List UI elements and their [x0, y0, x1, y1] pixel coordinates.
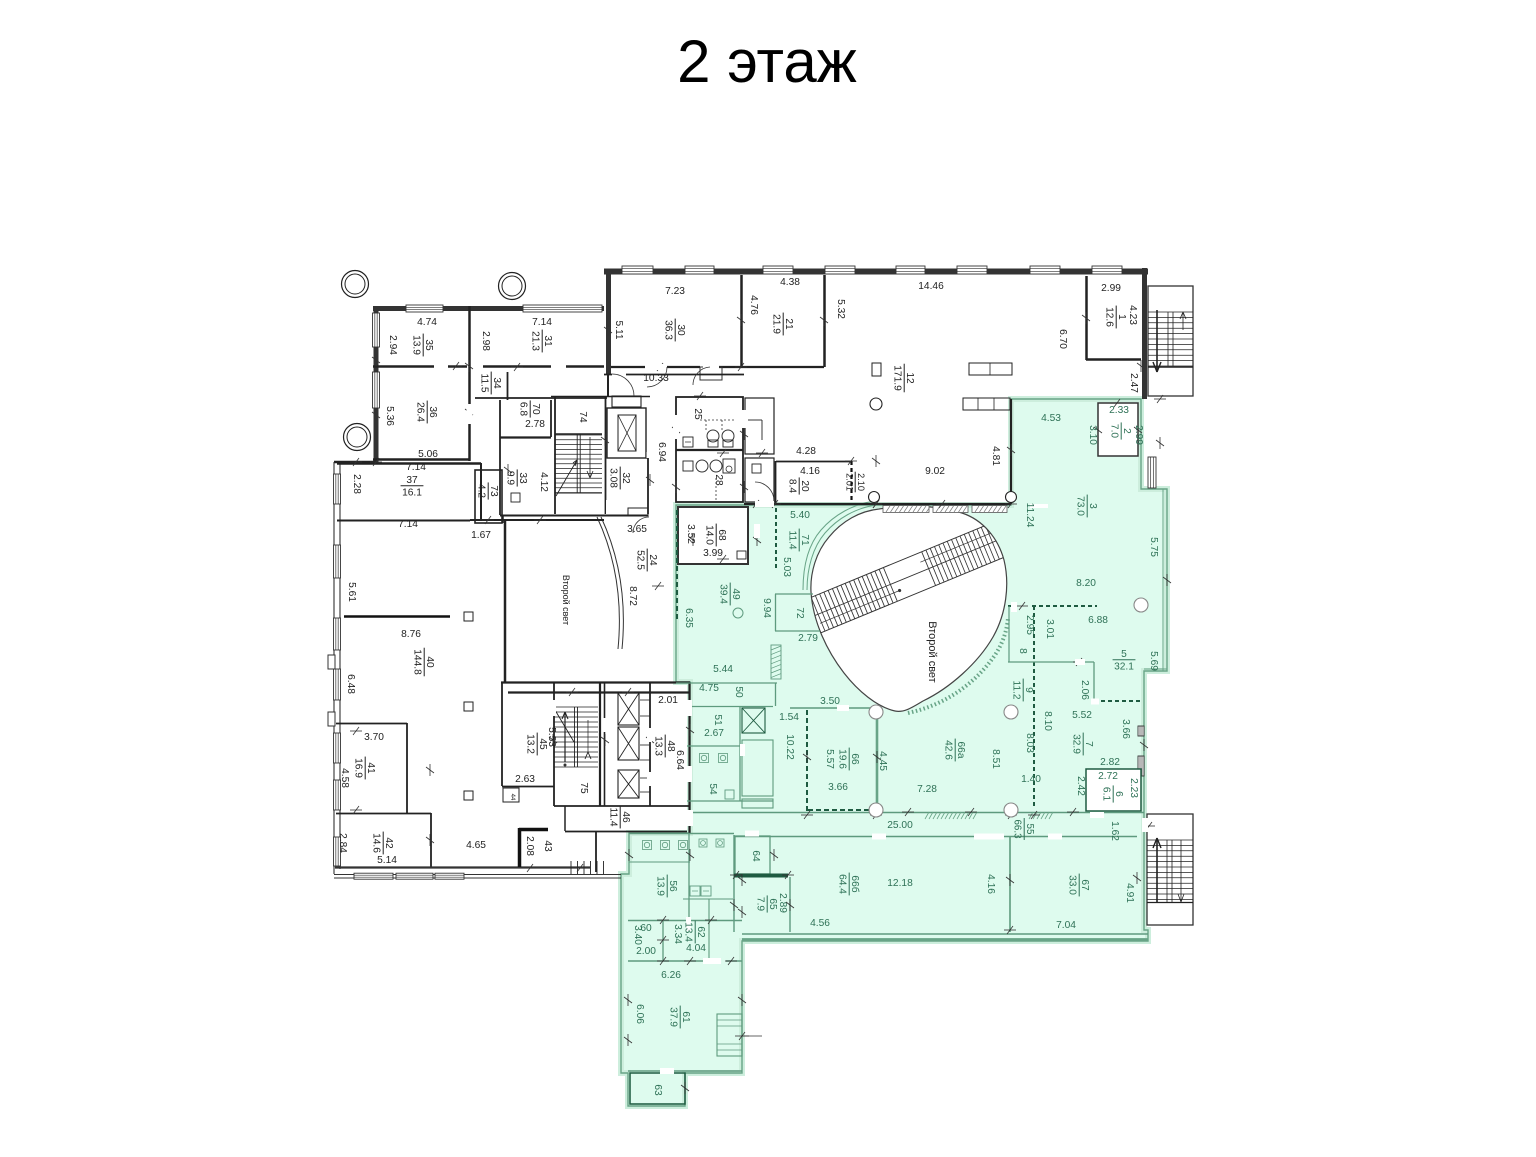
svg-text:14.6: 14.6 — [370, 833, 381, 853]
svg-text:2.01: 2.01 — [658, 695, 678, 706]
svg-text:50: 50 — [733, 686, 744, 698]
svg-text:5.52: 5.52 — [1072, 710, 1092, 721]
svg-text:12.6: 12.6 — [1103, 307, 1114, 327]
svg-text:2.94: 2.94 — [387, 335, 398, 355]
svg-text:4.38: 4.38 — [780, 277, 800, 288]
svg-text:64: 64 — [750, 850, 761, 862]
svg-text:16.1: 16.1 — [402, 488, 422, 499]
svg-text:3.34: 3.34 — [672, 924, 683, 944]
svg-text:4.2: 4.2 — [475, 484, 486, 498]
svg-text:11.4: 11.4 — [607, 807, 618, 826]
svg-text:8: 8 — [1017, 648, 1028, 654]
svg-text:20: 20 — [799, 480, 810, 492]
svg-text:12: 12 — [904, 372, 915, 384]
svg-text:7.9: 7.9 — [754, 897, 765, 911]
svg-text:2.47: 2.47 — [1128, 373, 1139, 393]
svg-text:4.28: 4.28 — [796, 446, 816, 457]
svg-text:5: 5 — [1121, 649, 1127, 660]
svg-text:11.24: 11.24 — [1024, 503, 1035, 528]
svg-text:13.2: 13.2 — [524, 734, 535, 754]
svg-text:11.4: 11.4 — [786, 530, 797, 549]
svg-text:7.14: 7.14 — [406, 462, 426, 473]
svg-text:25.00: 25.00 — [887, 820, 913, 831]
svg-text:7.0: 7.0 — [1108, 424, 1119, 438]
svg-text:6: 6 — [1113, 791, 1124, 797]
svg-text:71: 71 — [799, 534, 810, 546]
svg-text:6.8: 6.8 — [517, 402, 528, 416]
svg-text:2.79: 2.79 — [798, 633, 818, 644]
svg-text:8.76: 8.76 — [401, 629, 421, 640]
svg-text:Второй свет: Второй свет — [926, 621, 938, 682]
svg-text:2.89: 2.89 — [777, 893, 788, 913]
svg-text:39.4: 39.4 — [717, 584, 728, 604]
svg-text:70: 70 — [530, 403, 541, 415]
svg-text:45: 45 — [537, 738, 548, 750]
svg-text:8.10: 8.10 — [1042, 711, 1053, 731]
svg-text:9.02: 9.02 — [925, 466, 945, 477]
svg-text:14.46: 14.46 — [918, 281, 944, 292]
svg-text:4.81: 4.81 — [990, 446, 1001, 466]
svg-text:54: 54 — [707, 783, 718, 795]
svg-text:32.1: 32.1 — [1114, 662, 1134, 673]
svg-text:144.8: 144.8 — [411, 649, 422, 675]
svg-text:6.26: 6.26 — [661, 970, 681, 981]
svg-text:3.52: 3.52 — [685, 524, 696, 544]
svg-text:12.18: 12.18 — [887, 878, 913, 889]
svg-text:4.16: 4.16 — [800, 466, 820, 477]
svg-text:2.82: 2.82 — [1100, 757, 1120, 768]
svg-text:10.33: 10.33 — [643, 373, 669, 384]
svg-text:3.40: 3.40 — [632, 925, 643, 945]
svg-text:2.78: 2.78 — [525, 419, 545, 430]
svg-text:75: 75 — [578, 782, 589, 794]
svg-text:5.32: 5.32 — [835, 299, 846, 319]
svg-text:8.4: 8.4 — [786, 479, 797, 493]
svg-text:7.14: 7.14 — [532, 317, 552, 328]
svg-text:37: 37 — [406, 475, 418, 486]
svg-text:2.42: 2.42 — [1075, 776, 1086, 796]
svg-text:2.99: 2.99 — [1101, 283, 1121, 294]
svg-text:4.12: 4.12 — [538, 472, 549, 492]
svg-text:5.03: 5.03 — [781, 557, 792, 577]
svg-text:2 этаж: 2 этаж — [677, 28, 857, 95]
svg-text:8.20: 8.20 — [1076, 578, 1096, 589]
svg-text:33.0: 33.0 — [1066, 875, 1077, 895]
svg-text:4.56: 4.56 — [810, 918, 830, 929]
svg-text:5.11: 5.11 — [613, 320, 624, 339]
svg-text:6.48: 6.48 — [345, 674, 356, 694]
svg-text:37.9: 37.9 — [667, 1007, 678, 1027]
svg-text:5.40: 5.40 — [790, 510, 810, 521]
svg-text:13.3: 13.3 — [652, 736, 663, 756]
svg-text:4.76: 4.76 — [748, 295, 759, 315]
svg-text:49: 49 — [730, 588, 741, 600]
svg-text:66.3: 66.3 — [1012, 819, 1023, 839]
svg-text:13.9: 13.9 — [654, 876, 665, 896]
svg-text:35: 35 — [423, 339, 434, 351]
svg-text:2.63: 2.63 — [515, 774, 535, 785]
svg-text:3.50: 3.50 — [820, 696, 840, 707]
svg-text:10.22: 10.22 — [784, 734, 795, 760]
svg-text:11.2: 11.2 — [1010, 680, 1021, 699]
svg-text:2.00: 2.00 — [636, 946, 656, 957]
svg-text:2.67: 2.67 — [704, 728, 724, 739]
svg-text:34: 34 — [491, 377, 502, 389]
svg-text:4.75: 4.75 — [699, 683, 719, 694]
svg-text:72: 72 — [794, 607, 805, 619]
svg-text:43: 43 — [542, 840, 553, 852]
svg-text:11.5: 11.5 — [478, 373, 489, 392]
svg-text:7: 7 — [1083, 741, 1094, 747]
svg-text:6.88: 6.88 — [1088, 615, 1108, 626]
svg-text:2.84: 2.84 — [337, 833, 348, 853]
svg-text:Второй свет: Второй свет — [561, 575, 571, 625]
svg-text:2.98: 2.98 — [480, 331, 491, 351]
svg-text:8.72: 8.72 — [627, 586, 638, 606]
svg-text:1.62: 1.62 — [1109, 821, 1120, 841]
svg-text:4.53: 4.53 — [1041, 413, 1061, 424]
svg-text:3: 3 — [1087, 503, 1098, 509]
svg-text:21.3: 21.3 — [529, 331, 540, 351]
svg-text:66а: 66а — [955, 742, 966, 759]
svg-text:42: 42 — [383, 837, 394, 849]
svg-text:64.4: 64.4 — [836, 874, 847, 894]
svg-text:3.99: 3.99 — [703, 548, 723, 559]
svg-text:65: 65 — [767, 898, 778, 910]
svg-text:1: 1 — [1116, 314, 1127, 320]
svg-text:4.58: 4.58 — [339, 768, 350, 788]
svg-text:24: 24 — [647, 554, 658, 566]
svg-text:62: 62 — [695, 926, 706, 938]
svg-text:5.61: 5.61 — [346, 582, 357, 602]
svg-text:1.40: 1.40 — [1021, 774, 1041, 785]
svg-text:1.67: 1.67 — [471, 530, 491, 541]
svg-text:7.14: 7.14 — [398, 519, 418, 530]
svg-text:28: 28 — [713, 474, 724, 486]
svg-text:26.4: 26.4 — [414, 402, 425, 422]
svg-text:46: 46 — [620, 811, 631, 823]
svg-text:56: 56 — [667, 880, 678, 892]
svg-text:7.04: 7.04 — [1056, 920, 1076, 931]
svg-text:4.45: 4.45 — [877, 751, 888, 771]
svg-text:5.44: 5.44 — [713, 664, 733, 675]
svg-text:36.3: 36.3 — [662, 320, 673, 340]
svg-text:68: 68 — [716, 529, 727, 541]
svg-text:2.10: 2.10 — [856, 473, 866, 491]
svg-text:6.94: 6.94 — [656, 442, 667, 462]
svg-text:4.74: 4.74 — [417, 317, 437, 328]
svg-text:7.28: 7.28 — [917, 784, 937, 795]
svg-text:4.23: 4.23 — [1127, 305, 1138, 325]
svg-text:36: 36 — [427, 406, 438, 418]
svg-text:9.94: 9.94 — [761, 598, 772, 618]
svg-text:52.5: 52.5 — [634, 550, 645, 570]
svg-text:4.16: 4.16 — [985, 874, 996, 894]
svg-text:2.72: 2.72 — [1098, 771, 1118, 782]
svg-text:1.54: 1.54 — [779, 712, 799, 723]
svg-text:41: 41 — [365, 762, 376, 774]
svg-text:9: 9 — [1023, 687, 1034, 693]
svg-text:171.9: 171.9 — [891, 365, 902, 391]
svg-text:42.6: 42.6 — [942, 740, 953, 760]
svg-text:44: 44 — [509, 794, 515, 801]
svg-text:7.23: 7.23 — [665, 286, 685, 297]
svg-text:3.70: 3.70 — [364, 732, 384, 743]
svg-text:4.65: 4.65 — [466, 840, 486, 851]
svg-text:8.03: 8.03 — [1024, 733, 1035, 753]
svg-text:74: 74 — [577, 411, 588, 423]
svg-text:6.70: 6.70 — [1057, 329, 1068, 349]
svg-text:2.33: 2.33 — [1109, 405, 1129, 416]
svg-text:2.08: 2.08 — [524, 836, 535, 856]
svg-text:5.36: 5.36 — [384, 406, 395, 426]
svg-text:19.6: 19.6 — [836, 749, 847, 769]
svg-text:51: 51 — [712, 714, 723, 726]
svg-text:25: 25 — [692, 408, 703, 420]
svg-text:9.9: 9.9 — [504, 471, 515, 485]
svg-text:61: 61 — [680, 1011, 691, 1023]
svg-text:21: 21 — [783, 318, 794, 330]
svg-text:66: 66 — [849, 753, 860, 765]
svg-text:2.06: 2.06 — [1079, 680, 1090, 700]
svg-text:73: 73 — [488, 485, 499, 497]
svg-text:40: 40 — [424, 656, 435, 668]
svg-text:55: 55 — [1024, 824, 1035, 835]
svg-text:5.75: 5.75 — [1148, 537, 1159, 557]
svg-text:5.14: 5.14 — [377, 855, 397, 866]
svg-text:32.9: 32.9 — [1070, 734, 1081, 754]
svg-text:5.69: 5.69 — [1148, 651, 1159, 671]
svg-text:3.65: 3.65 — [627, 524, 647, 535]
svg-text:63: 63 — [652, 1084, 663, 1096]
svg-text:31: 31 — [542, 335, 553, 347]
svg-text:33: 33 — [517, 472, 528, 484]
svg-text:30: 30 — [675, 324, 686, 336]
svg-text:67: 67 — [1079, 879, 1090, 891]
svg-text:8.51: 8.51 — [990, 749, 1001, 769]
svg-text:2: 2 — [1121, 428, 1132, 434]
svg-text:5.06: 5.06 — [418, 449, 438, 460]
svg-text:6.35: 6.35 — [683, 608, 694, 628]
svg-text:14.0: 14.0 — [703, 525, 714, 545]
svg-text:2.95: 2.95 — [1024, 615, 1035, 635]
svg-text:6.64: 6.64 — [674, 750, 685, 770]
svg-text:3.10: 3.10 — [1087, 425, 1098, 445]
svg-text:32: 32 — [620, 472, 631, 484]
svg-text:3.66: 3.66 — [828, 782, 848, 793]
svg-text:66б: 66б — [849, 875, 861, 892]
svg-text:2.23: 2.23 — [1128, 778, 1139, 798]
svg-text:6.1: 6.1 — [1100, 787, 1111, 801]
svg-text:16.9: 16.9 — [352, 758, 363, 778]
svg-text:5.57: 5.57 — [824, 749, 835, 769]
svg-text:6.06: 6.06 — [634, 1004, 645, 1024]
svg-text:4.04: 4.04 — [686, 943, 706, 954]
svg-text:2.01: 2.01 — [844, 473, 854, 491]
svg-text:4.91: 4.91 — [1124, 883, 1135, 903]
svg-text:21.9: 21.9 — [770, 314, 781, 334]
svg-text:3.01: 3.01 — [1044, 619, 1055, 639]
svg-text:3.08: 3.08 — [607, 468, 618, 488]
svg-text:2.99: 2.99 — [1133, 425, 1144, 445]
svg-text:3.66: 3.66 — [1120, 719, 1131, 739]
svg-text:73.0: 73.0 — [1074, 496, 1085, 516]
svg-text:2.28: 2.28 — [351, 474, 362, 494]
svg-text:13.9: 13.9 — [410, 335, 421, 355]
